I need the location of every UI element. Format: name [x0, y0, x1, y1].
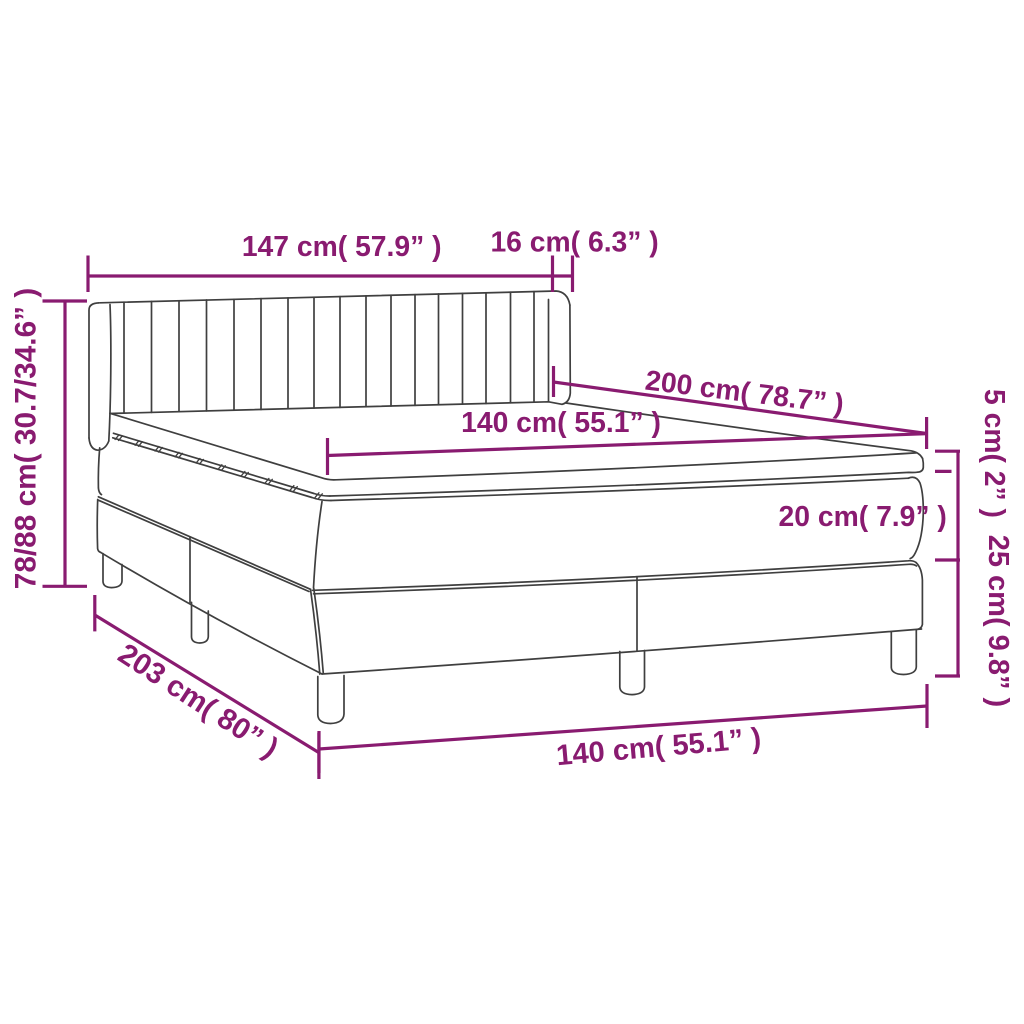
- svg-text:147 cm( 57.9” ): 147 cm( 57.9” ): [242, 230, 442, 262]
- svg-text:140 cm( 55.1” ): 140 cm( 55.1” ): [461, 406, 661, 438]
- svg-text:16 cm( 6.3” ): 16 cm( 6.3” ): [490, 226, 658, 258]
- svg-text:25 cm( 9.8” ): 25 cm( 9.8” ): [982, 535, 1014, 707]
- svg-text:78/88 cm( 30.7/34.6” ): 78/88 cm( 30.7/34.6” ): [10, 288, 43, 589]
- svg-text:5 cm( 2” ): 5 cm( 2” ): [979, 389, 1011, 518]
- svg-text:20 cm( 7.9” ): 20 cm( 7.9” ): [779, 500, 947, 532]
